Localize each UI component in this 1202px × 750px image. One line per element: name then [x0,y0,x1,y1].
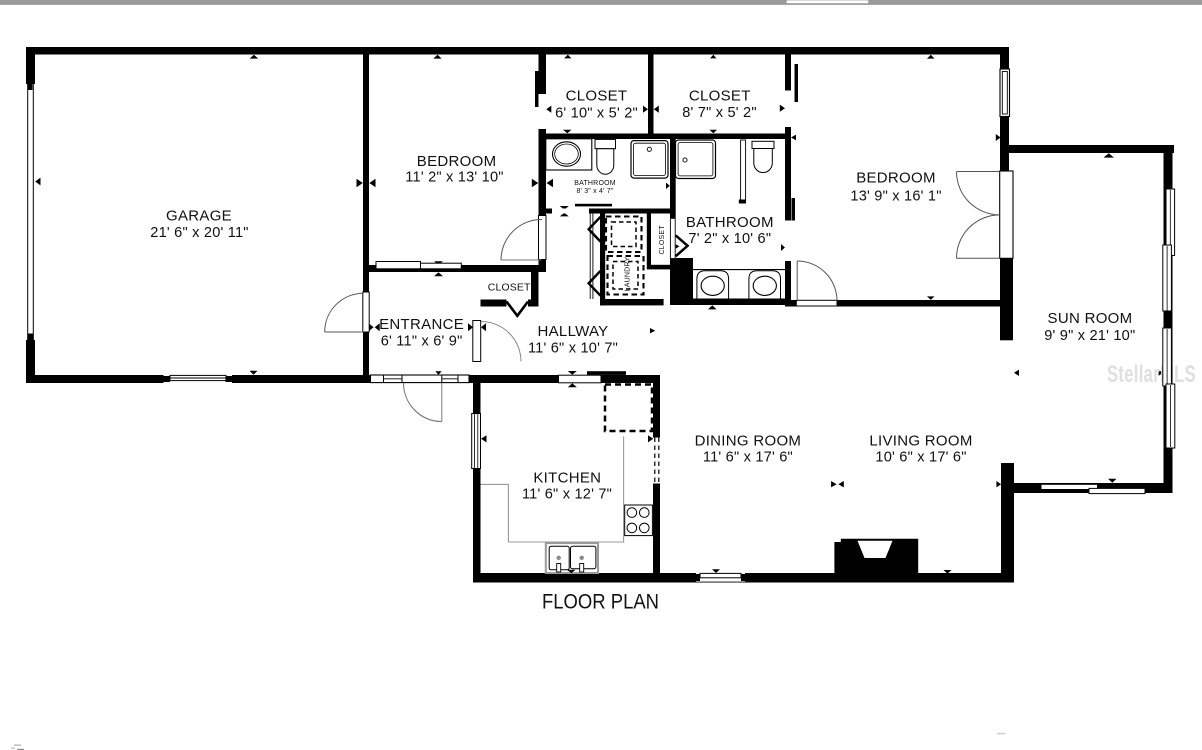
svg-text:11' 6" x 10' 7": 11' 6" x 10' 7" [528,341,618,357]
svg-text:HALLWAY: HALLWAY [537,323,608,340]
svg-text:21' 6" x 20' 11": 21' 6" x 20' 11" [150,225,248,241]
svg-text:7' 2" x 10' 6": 7' 2" x 10' 6" [688,231,771,247]
svg-text:GARAGE: GARAGE [166,208,232,225]
svg-text:BEDROOM: BEDROOM [417,153,497,170]
svg-text:11' 2" x 13' 10": 11' 2" x 13' 10" [405,170,503,186]
svg-text:DINING ROOM: DINING ROOM [695,433,802,450]
svg-text:8' 7" x 5' 2": 8' 7" x 5' 2" [682,105,757,121]
svg-text:8' 3" x 4' 7": 8' 3" x 4' 7" [576,188,613,195]
svg-text:6' 11" x 6' 9": 6' 11" x 6' 9" [381,333,463,349]
svg-text:CLOSET: CLOSET [689,88,751,105]
svg-text:LAUNDRY: LAUNDRY [625,257,632,292]
svg-text:11' 6" x 17' 6": 11' 6" x 17' 6" [703,450,793,466]
svg-text:CLOSET: CLOSET [659,225,666,255]
svg-text:SUN ROOM: SUN ROOM [1048,310,1133,327]
svg-text:KITCHEN: KITCHEN [533,469,601,486]
svg-text:9' 9" x 21' 10": 9' 9" x 21' 10" [1044,328,1135,344]
svg-text:FLOOR PLAN: FLOOR PLAN [542,591,659,614]
svg-text:LIVING ROOM: LIVING ROOM [869,433,972,450]
svg-text:BEDROOM: BEDROOM [856,170,936,187]
svg-text:13' 9" x 16' 1": 13' 9" x 16' 1" [850,188,941,204]
svg-text:CLOSET: CLOSET [488,282,531,293]
svg-text:10' 6" x 17' 6": 10' 6" x 17' 6" [875,450,966,466]
svg-text:11' 6" x 12' 7": 11' 6" x 12' 7" [522,486,612,502]
svg-text:ENTRANCE: ENTRANCE [379,316,464,333]
svg-text:6' 10" x 5' 2": 6' 10" x 5' 2" [555,105,638,121]
svg-text:BATHROOM: BATHROOM [686,214,774,231]
svg-text:BATHROOM: BATHROOM [574,180,616,187]
svg-text:StellarMLS: StellarMLS [1107,361,1196,388]
svg-text:CLOSET: CLOSET [566,88,628,105]
